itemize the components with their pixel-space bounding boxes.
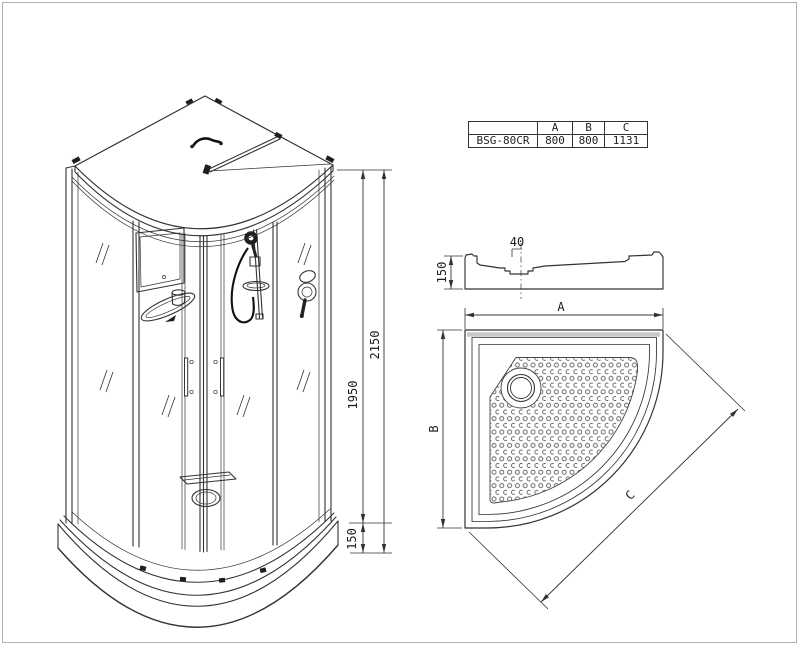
spec-model-cell: BSG-80CR <box>469 135 538 148</box>
roof-panel <box>72 96 335 247</box>
tray-threshold-step <box>180 472 236 484</box>
spec-header-col-c: C <box>605 122 648 135</box>
spec-header-col-b: B <box>573 122 605 135</box>
shower-column <box>232 230 269 323</box>
dim-tray-height-label: 150 <box>345 528 359 550</box>
center-meeting-post <box>200 236 207 552</box>
drain-outer-ring <box>508 375 535 402</box>
shower-tray <box>58 472 338 627</box>
dim-plan-depth-label: B <box>427 425 441 432</box>
spec-table-value-row: BSG-80CR 800 800 1131 <box>469 135 648 148</box>
dim-section-height-label: 150 <box>435 262 449 284</box>
cabin-isometric-view: 1950 2150 150 <box>58 96 392 627</box>
door-handle-left <box>185 358 194 396</box>
dim-plan-width-label: A <box>557 300 565 314</box>
tray-rim-1 <box>64 513 334 582</box>
right-frame-post <box>325 165 333 521</box>
tray-section-view: 40 150 <box>435 235 663 299</box>
dim-drain-width-label: 40 <box>510 235 524 249</box>
mixer-valve <box>298 269 317 318</box>
tray-drain <box>192 490 220 507</box>
drawing-canvas: 1950 2150 150 40 150 <box>0 0 800 645</box>
right-door-jamb <box>273 222 277 545</box>
spec-table-header-row: A B C <box>469 122 648 135</box>
tray-rim-3 <box>58 521 338 606</box>
left-door-jamb <box>133 221 139 547</box>
tray-rim-2 <box>60 517 336 595</box>
spec-header-col-a: A <box>538 122 573 135</box>
mixer-lever <box>302 300 305 315</box>
dim-glass-height-label: 1950 <box>346 381 360 410</box>
cabin-dimensions: 1950 2150 150 <box>337 170 392 553</box>
tray-floor-edge <box>72 509 330 570</box>
dim-total-height-label: 2150 <box>368 331 382 360</box>
door-rollers <box>139 565 266 582</box>
dim-plan-diagonal-label: C <box>623 488 638 503</box>
corner-shelf <box>138 288 197 326</box>
technical-drawing-svg: 1950 2150 150 40 150 <box>0 0 800 645</box>
handshower-handle <box>253 245 257 258</box>
tray-top-view: A B C <box>427 300 745 609</box>
door-handle-right <box>214 358 224 396</box>
spec-value-c: 1131 <box>605 135 648 148</box>
spec-value-a: 800 <box>538 135 573 148</box>
wall-mirror <box>136 228 184 292</box>
spec-header-empty-cell <box>469 122 538 135</box>
left-frame-post <box>66 166 75 523</box>
section-outline <box>465 252 663 289</box>
spec-table: A B C BSG-80CR 800 800 1131 <box>468 121 648 148</box>
spec-value-b: 800 <box>573 135 605 148</box>
cup <box>172 290 185 306</box>
